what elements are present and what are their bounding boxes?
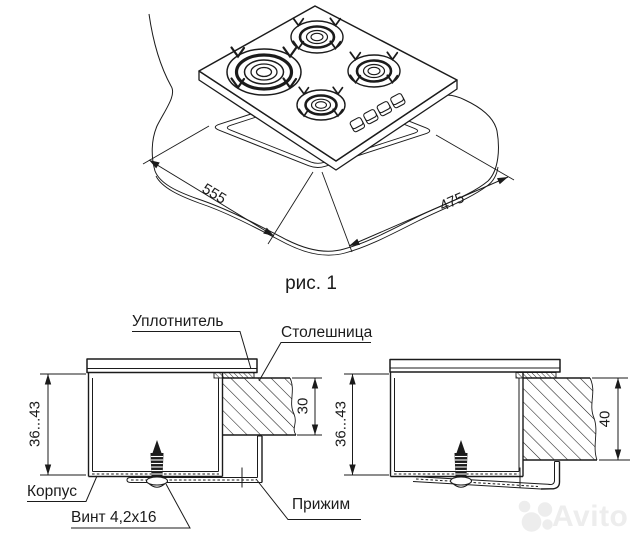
countertop-label: Столешница bbox=[281, 324, 372, 342]
avito-logo-icon bbox=[519, 501, 553, 532]
dimension-555-lines bbox=[143, 126, 313, 244]
dimension-30-value: 30 bbox=[295, 398, 312, 415]
avito-watermark-text: Avito bbox=[552, 500, 628, 534]
figure-caption: рис. 1 bbox=[285, 273, 337, 295]
dimension-40-value: 40 bbox=[597, 411, 614, 428]
screw-label: Винт 4,2х16 bbox=[71, 509, 157, 527]
dimension-height-right-value: 36...43 bbox=[333, 401, 350, 447]
dimension-height-left-value: 36...43 bbox=[27, 401, 44, 447]
clamp-label: Прижим bbox=[292, 496, 350, 514]
dimension-height-right bbox=[344, 374, 389, 475]
seal-strip bbox=[214, 373, 254, 379]
countertop-section bbox=[223, 378, 297, 435]
seal-label: Уплотнитель bbox=[132, 313, 224, 331]
countertop-section bbox=[524, 378, 598, 460]
installation-drawing-page: 555 475 рис. 1 36...43 30 36...43 40 Упл… bbox=[0, 0, 632, 540]
clamp-bracket bbox=[413, 462, 560, 490]
seal-strip bbox=[516, 373, 556, 379]
dimension-height-left bbox=[40, 374, 86, 475]
drawing-canvas bbox=[0, 0, 632, 540]
section-right bbox=[344, 360, 630, 490]
screw bbox=[451, 440, 472, 487]
glass-panel bbox=[390, 360, 560, 373]
isometric-hob-figure bbox=[143, 6, 514, 255]
body-label: Корпус bbox=[27, 483, 77, 501]
screw bbox=[147, 440, 168, 487]
glass-panel bbox=[87, 359, 257, 373]
